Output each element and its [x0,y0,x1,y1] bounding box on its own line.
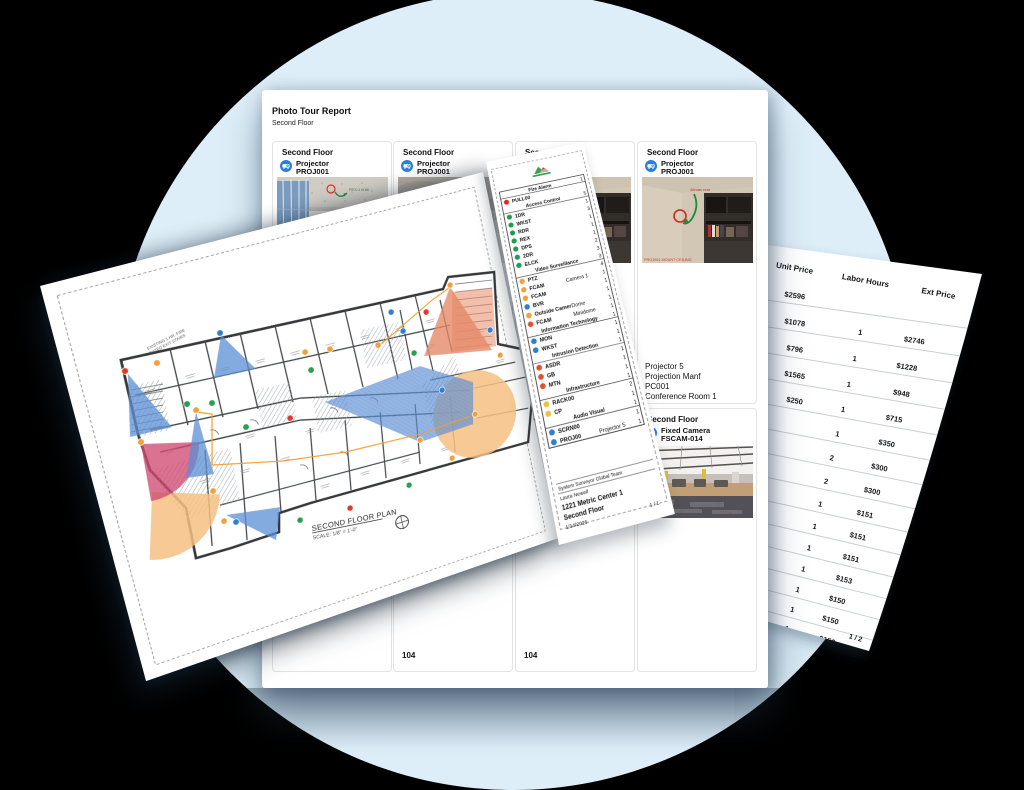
svg-text:1: 1 [622,354,627,361]
svg-text:3: 3 [587,206,591,212]
svg-text:1: 1 [638,417,643,424]
svg-text:Audio Visual: Audio Visual [573,407,606,421]
svg-text:RDR: RDR [518,227,530,235]
svg-text:$150: $150 [818,655,837,668]
svg-text:RACK00: RACK00 [552,395,575,406]
svg-text:5: 5 [583,191,587,197]
svg-text:Camera 1: Camera 1 [565,273,589,283]
svg-text:1: 1 [590,221,594,227]
svg-text:REX: REX [519,235,531,243]
svg-text:1: 1 [602,269,606,275]
svg-text:1: 1 [580,176,584,181]
svg-text:1: 1 [631,390,636,397]
svg-text:1: 1 [612,311,617,317]
svg-text:2: 2 [629,380,634,387]
svg-text:MTN: MTN [548,379,562,388]
svg-text:1DR: 1DR [515,212,527,219]
svg-text:DPS: DPS [521,243,532,250]
svg-text:1: 1 [592,229,596,235]
svg-text:WKST: WKST [516,218,532,226]
svg-text:2DR: 2DR [523,251,535,259]
svg-text:1: 1 [608,294,613,300]
svg-text:48max rear: 48max rear [690,187,711,192]
svg-text:FCAM: FCAM [529,283,545,292]
svg-text:BVR: BVR [532,301,545,309]
svg-text:4: 4 [600,261,604,267]
svg-text:3: 3 [596,245,600,251]
svg-text:2: 2 [594,237,598,243]
svg-text:Infrastructure: Infrastructure [566,379,601,393]
svg-text:PROJ 4 HDMI: PROJ 4 HDMI [349,188,369,192]
svg-text:1: 1 [618,336,623,342]
svg-text:1: 1 [627,372,632,379]
svg-text:PROJ001 MOUNT CEILING: PROJ001 MOUNT CEILING [644,258,692,262]
svg-text:1: 1 [633,399,638,406]
svg-text:1: 1 [635,408,640,415]
svg-text:FCAM: FCAM [531,291,547,300]
svg-text:MON: MON [539,334,553,343]
svg-text:1: 1 [610,303,615,309]
svg-text:1: 1 [625,363,630,370]
svg-text:FCAM: FCAM [536,317,552,326]
svg-text:ASDR: ASDR [545,360,562,370]
svg-text:1 / 1: 1 / 1 [649,499,661,508]
svg-text:CP: CP [554,408,563,416]
svg-text:1: 1 [604,277,609,283]
svg-text:1: 1 [616,328,621,334]
svg-text:Access Control: Access Control [525,196,560,208]
svg-text:ELCK: ELCK [524,259,540,267]
svg-text:1: 1 [606,286,611,292]
svg-text:System Surveyor Global Team: System Surveyor Global Team [558,469,624,492]
svg-text:PTZ: PTZ [527,276,538,284]
svg-text:1: 1 [620,345,625,352]
svg-text:WKST: WKST [541,343,558,352]
svg-text:3: 3 [598,253,602,259]
svg-text:1: 1 [614,319,619,325]
svg-text:Dome: Dome [571,300,586,309]
svg-text:1: 1 [589,213,593,219]
svg-text:GB: GB [546,371,556,379]
svg-text:1: 1 [585,198,589,204]
